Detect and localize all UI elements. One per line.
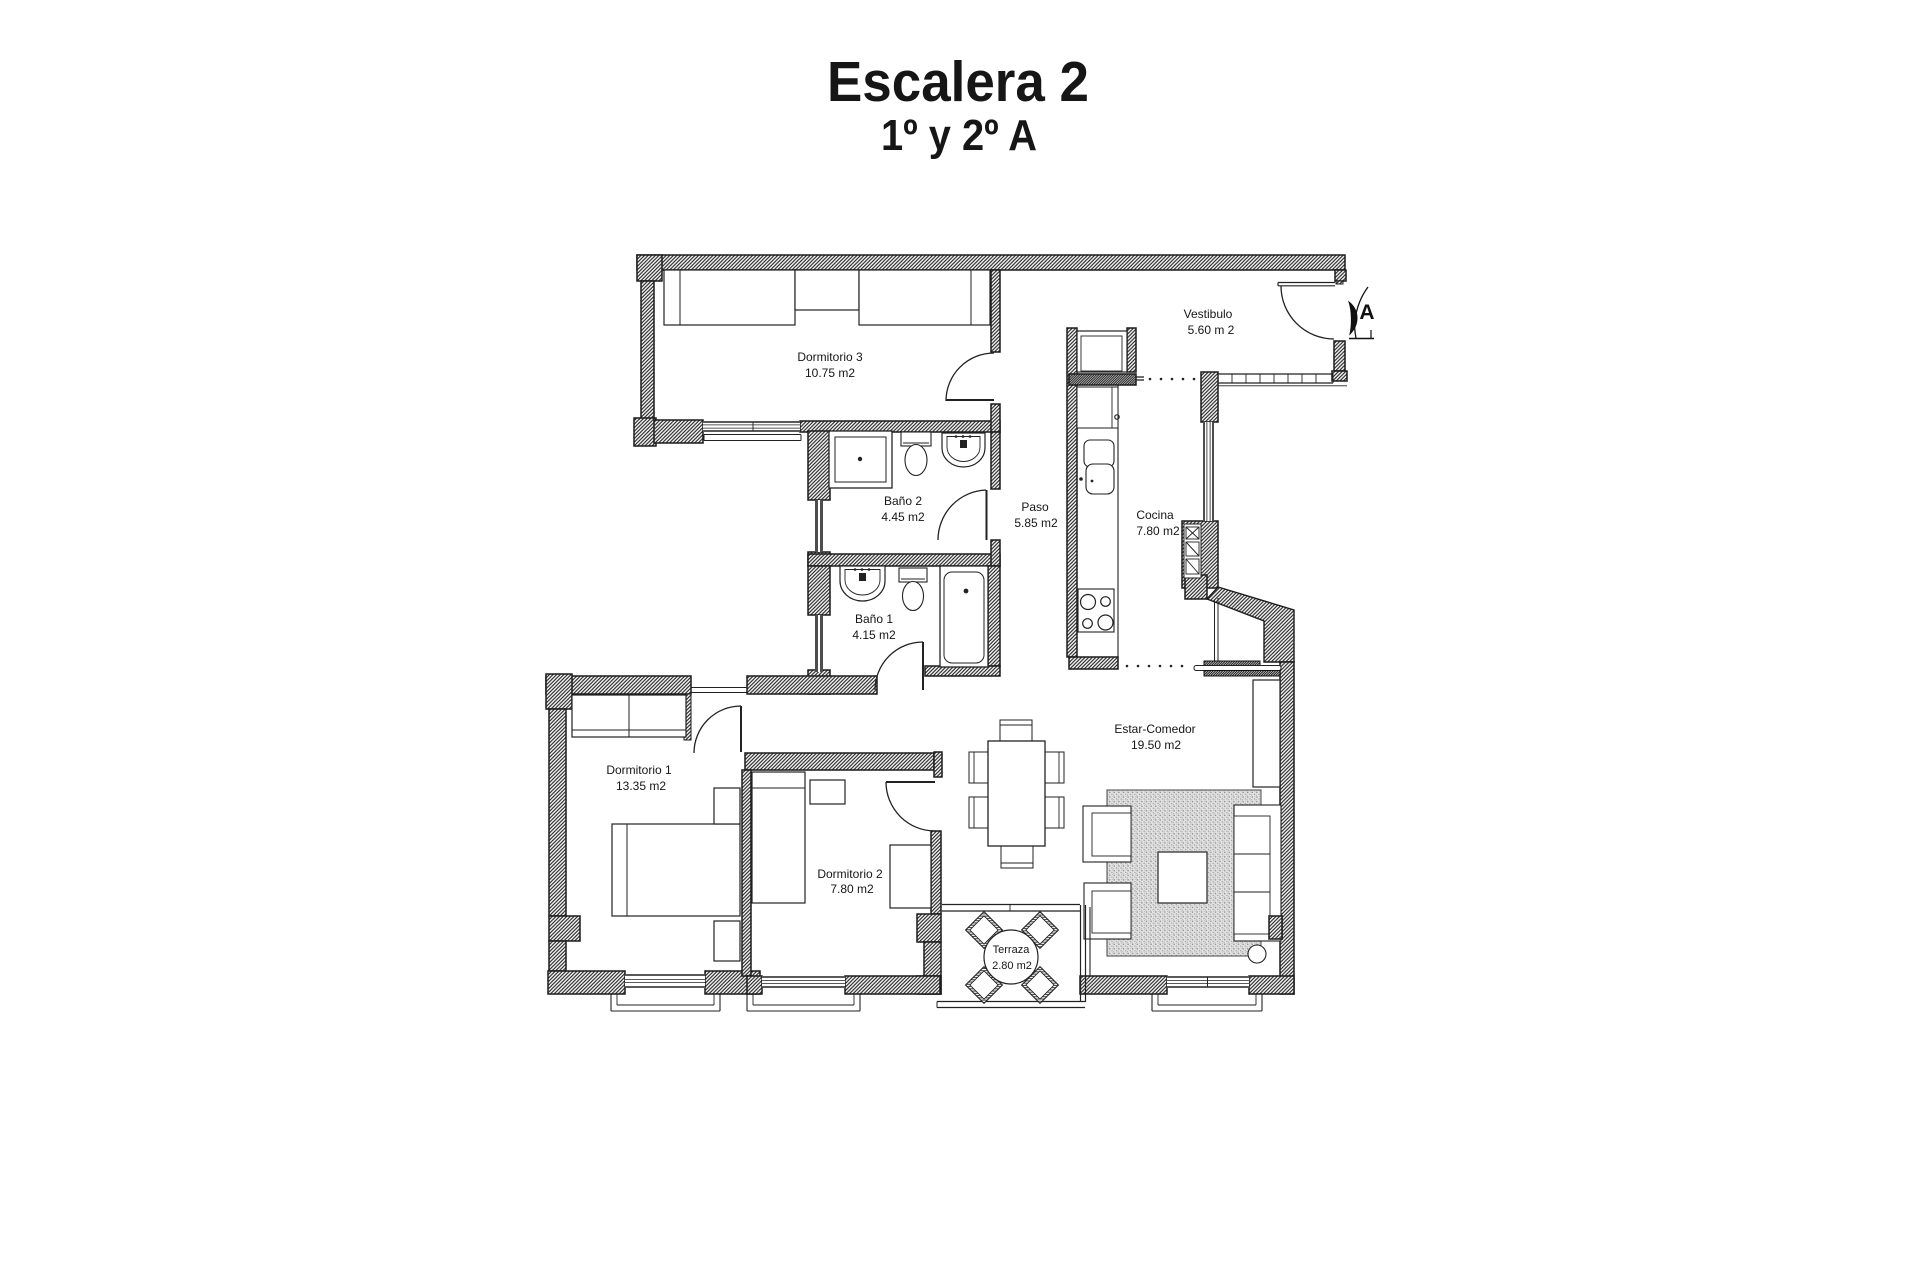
svg-text:13.35 m2: 13.35 m2 — [616, 779, 666, 793]
svg-text:1º y 2º A: 1º y 2º A — [881, 111, 1037, 160]
svg-text:5.60 m 2: 5.60 m 2 — [1188, 323, 1235, 337]
svg-text:4.45 m2: 4.45 m2 — [881, 510, 925, 524]
svg-text:Dormitorio 1: Dormitorio 1 — [606, 763, 672, 777]
svg-text:Vestibulo: Vestibulo — [1184, 307, 1233, 321]
svg-text:A: A — [1359, 301, 1374, 324]
svg-text:Escalera 2: Escalera 2 — [827, 50, 1089, 114]
svg-text:19.50 m2: 19.50 m2 — [1131, 738, 1181, 752]
svg-text:4.15 m2: 4.15 m2 — [852, 628, 896, 642]
svg-text:7.80 m2: 7.80 m2 — [1136, 524, 1180, 538]
svg-text:Terraza: Terraza — [993, 944, 1031, 956]
svg-text:Baño 1: Baño 1 — [855, 612, 893, 626]
svg-text:Estar-Comedor: Estar-Comedor — [1114, 722, 1195, 736]
svg-text:5.85 m2: 5.85 m2 — [1014, 516, 1058, 530]
svg-text:Paso: Paso — [1021, 500, 1049, 514]
svg-text:Cocina: Cocina — [1136, 508, 1174, 522]
svg-text:Dormitorio 2: Dormitorio 2 — [817, 867, 883, 881]
svg-text:10.75 m2: 10.75 m2 — [805, 366, 855, 380]
svg-text:Baño 2: Baño 2 — [884, 494, 922, 508]
svg-text:Dormitorio 3: Dormitorio 3 — [797, 350, 863, 364]
svg-text:7.80 m2: 7.80 m2 — [830, 882, 874, 896]
svg-text:2.80 m2: 2.80 m2 — [992, 960, 1032, 972]
